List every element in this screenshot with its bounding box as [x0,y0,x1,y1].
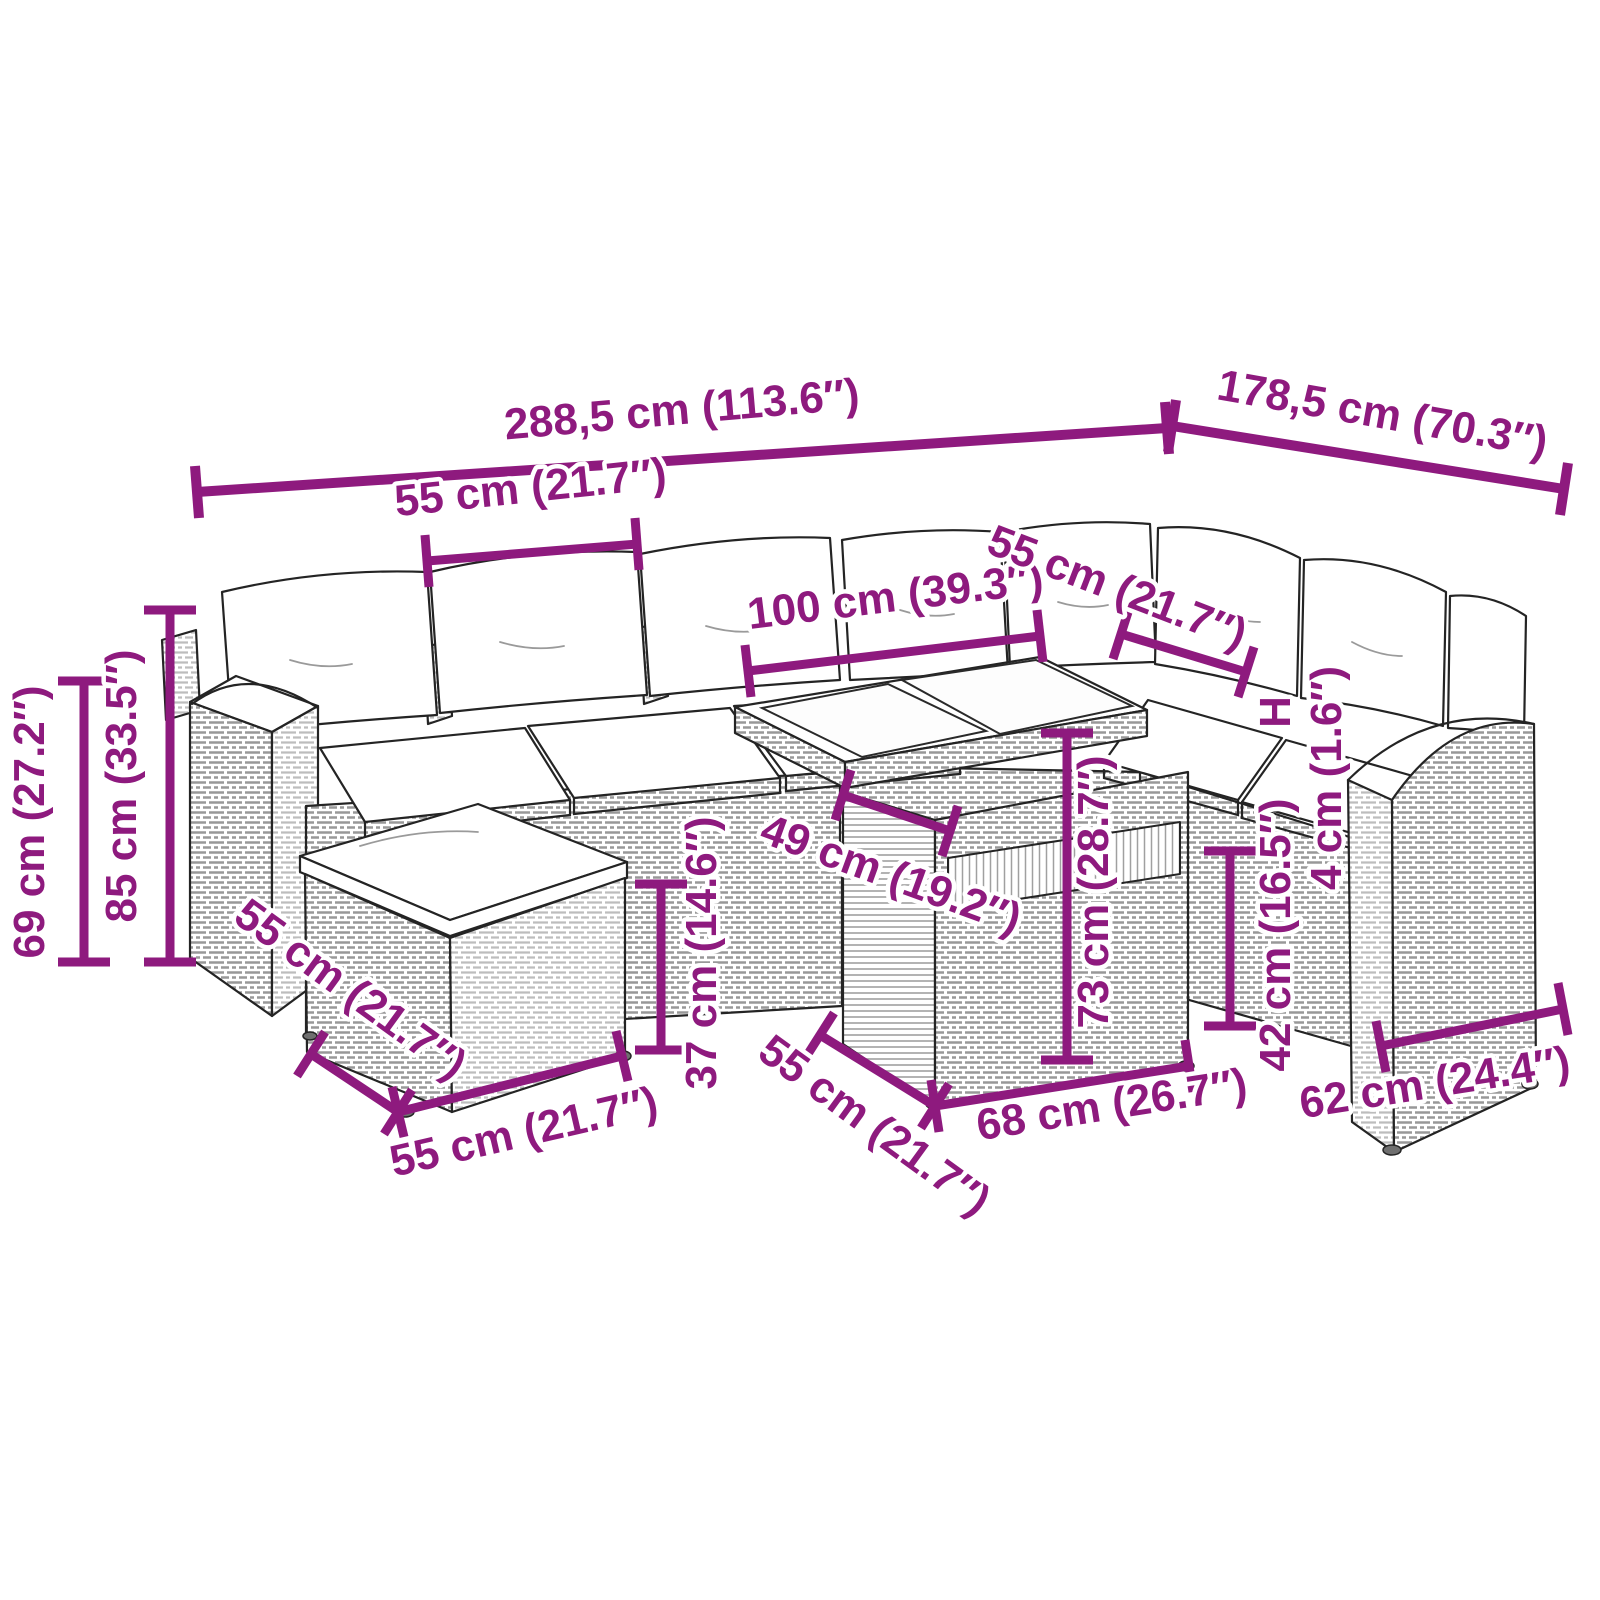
dim-label-table-height: 73 cm (28.7″) [1069,755,1118,1028]
dim-label-ottoman-height: 37 cm (14.6″) [677,816,726,1089]
dim-label-height-marker: H [1251,696,1300,728]
dimension-diagram: 288,5 cm (113.6″) 178,5 cm (70.3″) 55 cm… [0,0,1600,1600]
dim-label-overall-width: 288,5 cm (113.6″) [502,370,861,450]
dim-label-height-69: 69 cm (27.2″) [5,685,54,958]
dim-label-overall-depth: 178,5 cm (70.3″) [1214,361,1552,467]
dim-label-height-85: 85 cm (33.5″) [97,649,146,922]
dim-label-tabletop-thickness: 4 cm (1.6″) [1302,666,1351,890]
dim-label-seat-height: 42 cm (16.5″) [1251,798,1300,1071]
dim-label-back-cushion-width: 55 cm (21.7″) [392,449,669,526]
garden-sofa-set-diagram: 288,5 cm (113.6″) 178,5 cm (70.3″) 55 cm… [0,0,1600,1600]
